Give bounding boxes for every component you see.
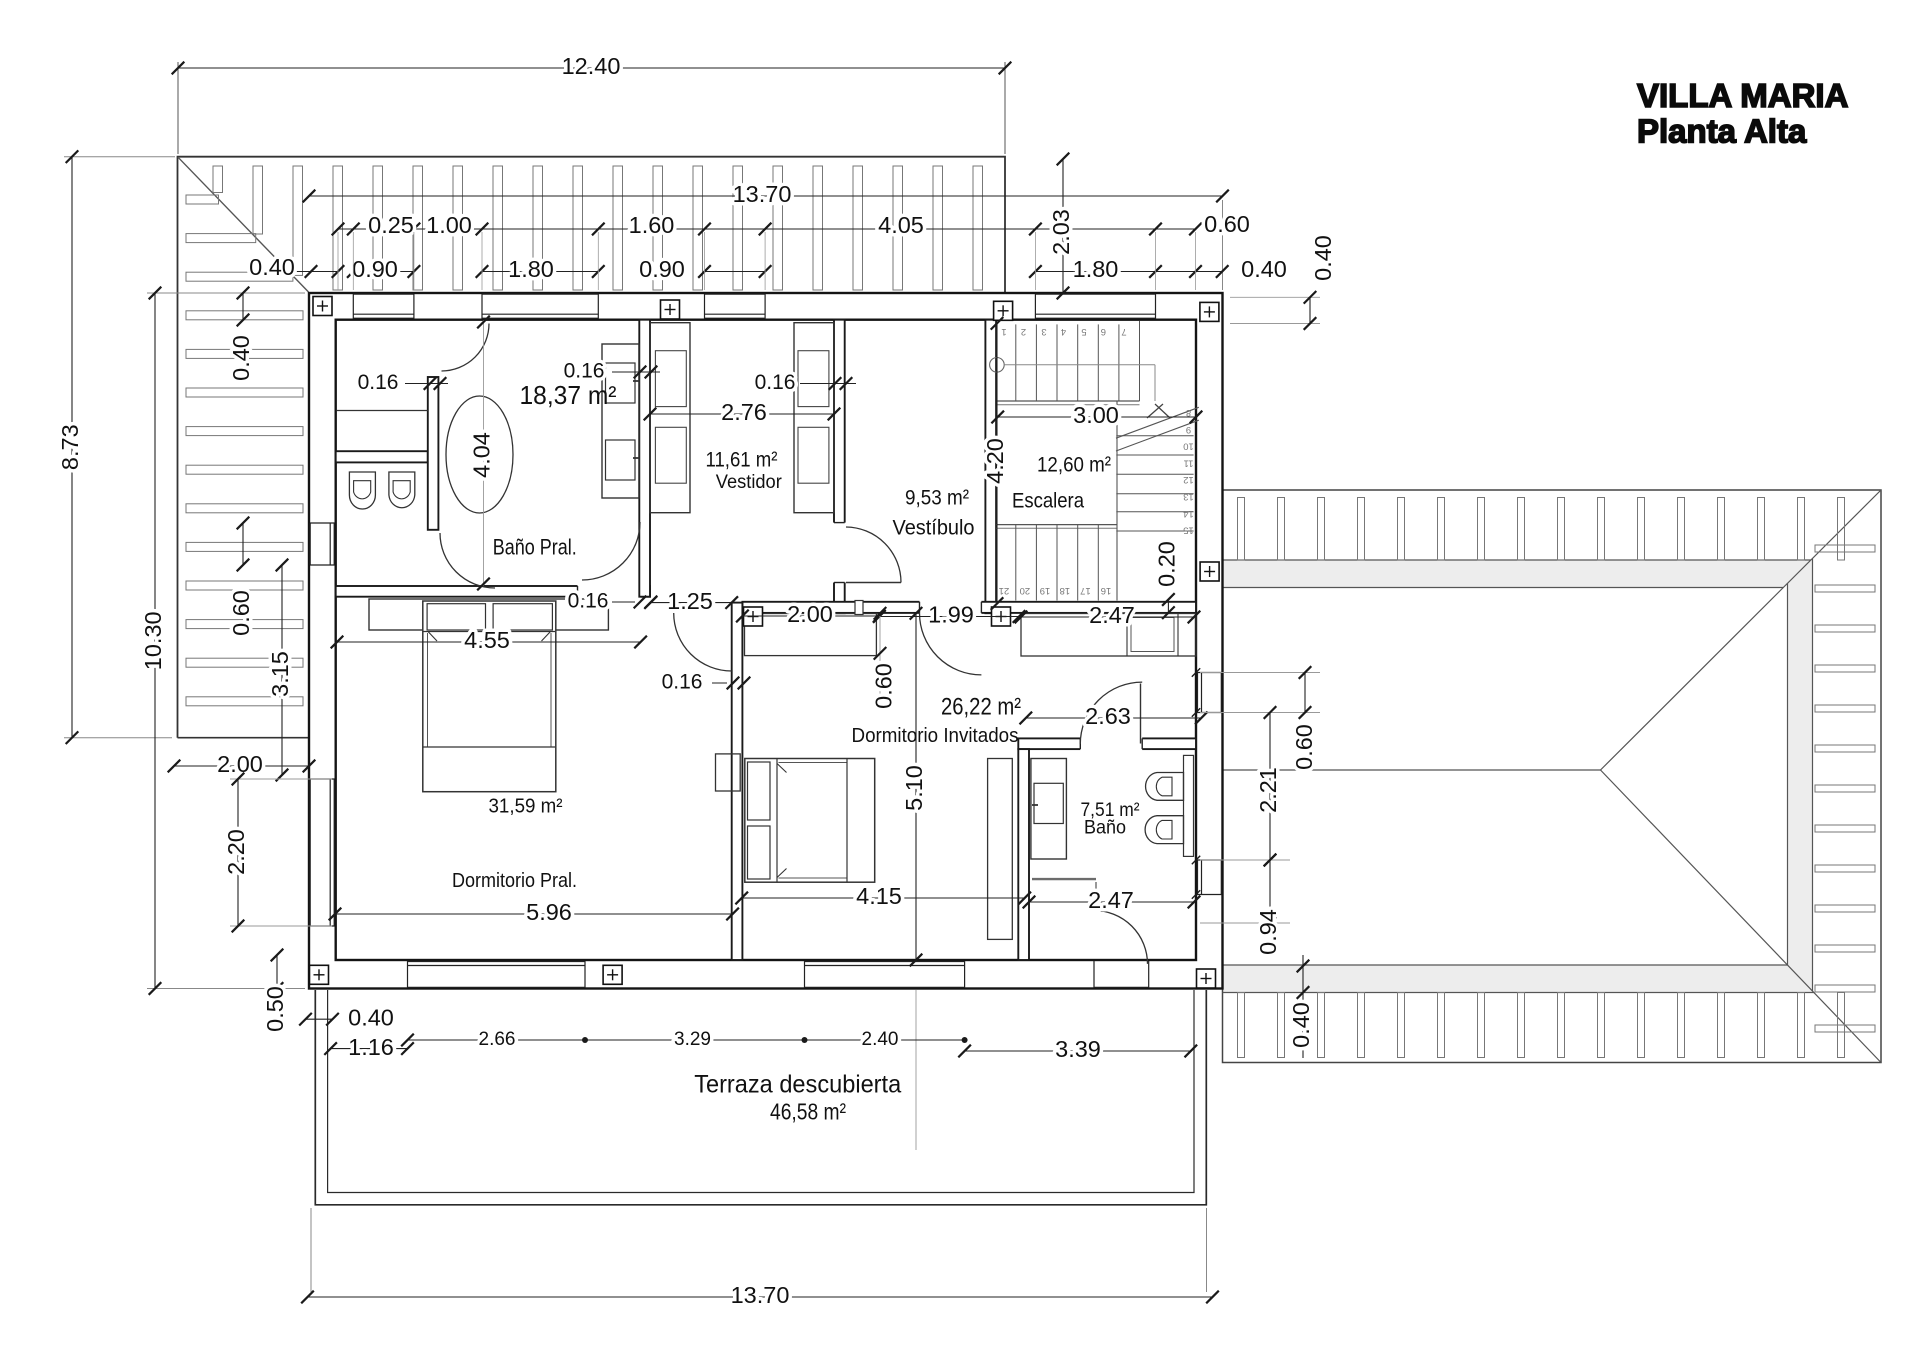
svg-text:1.80: 1.80	[508, 256, 554, 282]
svg-text:3.00: 3.00	[1073, 402, 1119, 428]
svg-text:9: 9	[1186, 424, 1191, 435]
svg-text:2.00: 2.00	[787, 601, 833, 627]
svg-text:3.15: 3.15	[267, 651, 293, 697]
svg-text:0.40: 0.40	[1288, 1002, 1314, 1048]
svg-text:4.15: 4.15	[856, 883, 902, 909]
svg-text:19: 19	[1040, 585, 1051, 596]
svg-text:5: 5	[1081, 326, 1086, 337]
svg-text:Vestíbulo: Vestíbulo	[893, 517, 975, 540]
svg-text:4.55: 4.55	[464, 627, 510, 653]
svg-text:12: 12	[1183, 474, 1194, 485]
svg-text:1.99: 1.99	[928, 602, 974, 628]
svg-text:5.10: 5.10	[901, 765, 927, 811]
svg-text:0.90: 0.90	[352, 256, 398, 282]
svg-text:0.60: 0.60	[1291, 724, 1317, 770]
svg-text:9,53 m²: 9,53 m²	[905, 487, 969, 510]
svg-text:2.66: 2.66	[479, 1029, 516, 1050]
svg-text:0.16: 0.16	[358, 371, 399, 394]
svg-text:4.05: 4.05	[878, 212, 924, 238]
svg-text:0.40: 0.40	[228, 335, 254, 381]
svg-text:0.16: 0.16	[662, 671, 703, 694]
svg-text:3.29: 3.29	[674, 1029, 711, 1050]
svg-text:VILLA MARIA: VILLA MARIA	[1637, 77, 1848, 114]
svg-text:0.40: 0.40	[249, 254, 295, 280]
svg-text:0.40: 0.40	[1241, 256, 1287, 282]
svg-text:Baño: Baño	[1084, 817, 1126, 839]
svg-text:16: 16	[1101, 585, 1112, 596]
svg-text:2.00: 2.00	[217, 751, 263, 777]
svg-text:2.40: 2.40	[862, 1029, 899, 1050]
svg-text:1.00: 1.00	[426, 212, 472, 238]
svg-text:2.76: 2.76	[721, 399, 767, 425]
svg-text:13.70: 13.70	[731, 1282, 790, 1308]
svg-text:2.63: 2.63	[1085, 703, 1131, 729]
svg-text:4.04: 4.04	[469, 432, 495, 478]
svg-text:0.16: 0.16	[568, 590, 609, 613]
svg-text:21: 21	[999, 585, 1010, 596]
svg-text:0.50: 0.50	[262, 986, 288, 1032]
svg-text:4.20: 4.20	[982, 438, 1008, 484]
svg-text:10: 10	[1183, 441, 1194, 452]
svg-text:5.96: 5.96	[526, 899, 572, 925]
svg-text:1.25: 1.25	[667, 588, 713, 614]
svg-text:1.16: 1.16	[348, 1034, 394, 1060]
svg-text:26,22 m²: 26,22 m²	[941, 693, 1021, 720]
svg-text:18: 18	[1060, 585, 1071, 596]
svg-text:8.73: 8.73	[57, 424, 83, 470]
svg-text:14: 14	[1183, 508, 1194, 519]
svg-text:1.60: 1.60	[629, 212, 675, 238]
svg-text:13.70: 13.70	[733, 181, 792, 207]
svg-text:2.47: 2.47	[1089, 602, 1135, 628]
svg-text:12,60 m²: 12,60 m²	[1037, 453, 1111, 477]
svg-text:0.40: 0.40	[1310, 235, 1336, 281]
svg-text:2.03: 2.03	[1048, 209, 1074, 255]
svg-text:2.21: 2.21	[1255, 767, 1281, 813]
svg-text:0.16: 0.16	[755, 371, 796, 394]
svg-text:11: 11	[1184, 457, 1194, 468]
svg-text:7: 7	[1121, 326, 1126, 337]
svg-text:17: 17	[1080, 585, 1091, 596]
svg-text:0.40: 0.40	[348, 1004, 394, 1030]
svg-text:6: 6	[1101, 326, 1106, 337]
svg-text:0.60: 0.60	[1204, 211, 1250, 237]
svg-text:Dormitorio Invitados: Dormitorio Invitados	[852, 725, 1019, 747]
svg-text:Escalera: Escalera	[1012, 489, 1084, 513]
svg-text:2: 2	[1021, 326, 1026, 337]
svg-text:2.47: 2.47	[1088, 887, 1134, 913]
svg-text:46,58 m²: 46,58 m²	[770, 1099, 846, 1125]
svg-text:0.60: 0.60	[228, 590, 254, 636]
svg-text:Planta Alta: Planta Alta	[1637, 113, 1807, 150]
svg-text:8: 8	[1186, 407, 1191, 418]
svg-text:Vestidor: Vestidor	[716, 471, 782, 493]
svg-text:11,61 m²: 11,61 m²	[706, 448, 778, 471]
svg-text:0.20: 0.20	[1154, 541, 1180, 587]
svg-text:15: 15	[1183, 525, 1194, 536]
svg-text:10.30: 10.30	[140, 611, 166, 670]
svg-text:3.39: 3.39	[1055, 1036, 1101, 1062]
svg-text:3: 3	[1041, 326, 1046, 337]
svg-text:12.40: 12.40	[562, 53, 621, 79]
svg-text:0.25: 0.25	[368, 212, 414, 238]
svg-text:Terraza descubierta: Terraza descubierta	[694, 1071, 901, 1099]
svg-text:1: 1	[1001, 326, 1006, 337]
svg-text:2.20: 2.20	[223, 829, 249, 875]
svg-text:13: 13	[1183, 491, 1194, 502]
svg-text:Baño Pral.: Baño Pral.	[493, 534, 577, 559]
svg-text:0.90: 0.90	[639, 256, 685, 282]
svg-text:Dormitorio Pral.: Dormitorio Pral.	[452, 870, 577, 892]
svg-text:31,59 m²: 31,59 m²	[489, 795, 563, 817]
svg-text:1.80: 1.80	[1073, 256, 1119, 282]
svg-text:18,37 m²: 18,37 m²	[520, 380, 617, 410]
svg-text:20: 20	[1020, 585, 1031, 596]
svg-text:0.60: 0.60	[871, 663, 897, 709]
svg-text:4: 4	[1061, 326, 1066, 337]
svg-text:0.94: 0.94	[1255, 909, 1281, 955]
